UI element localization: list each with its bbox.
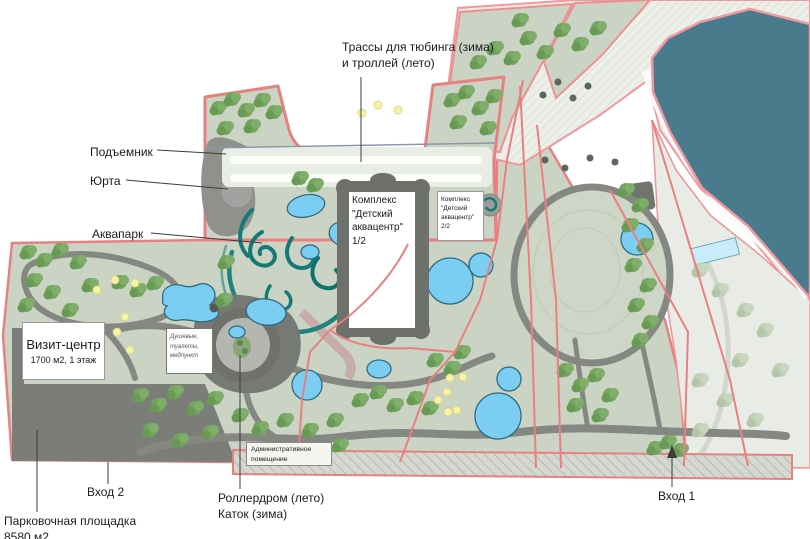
visit-center-box: Визит-центр 1700 м2, 1 этаж xyxy=(22,322,105,380)
parking-label: Парковочная площадка 8580 м2 xyxy=(4,514,136,539)
entrance2-label: Вход 2 xyxy=(87,485,124,501)
visit-center-subtitle: 1700 м2, 1 этаж xyxy=(31,355,97,365)
admin-box: Административное помещение xyxy=(246,442,332,466)
visit-center-title: Визит-центр xyxy=(26,337,100,352)
tubing-tracks xyxy=(205,143,495,187)
entrance1-label: Вход 1 xyxy=(658,489,695,505)
aquapark-label: Аквапарк xyxy=(92,227,143,243)
site-plan-drawing xyxy=(0,0,810,539)
kids-aquacenter2-box: Комплекс "Детский аквацентр" 2/2 xyxy=(437,191,484,241)
lift-label: Подъемник xyxy=(90,145,153,161)
tubing-label: Трассы для тюбинга (зима) и троллей (лет… xyxy=(342,40,494,71)
site-plan: Трассы для тюбинга (зима) и троллей (лет… xyxy=(0,0,810,539)
showers-box: Душевые, туалеты, медпункт xyxy=(166,328,213,374)
yurt-label: Юрта xyxy=(90,174,121,190)
rollerdrome-label: Роллердром (лето) Каток (зима) xyxy=(218,491,324,522)
kids-aquacenter1-label: Комплекс "Детский аквацентр" 1/2 xyxy=(352,194,416,248)
pond xyxy=(162,284,218,322)
